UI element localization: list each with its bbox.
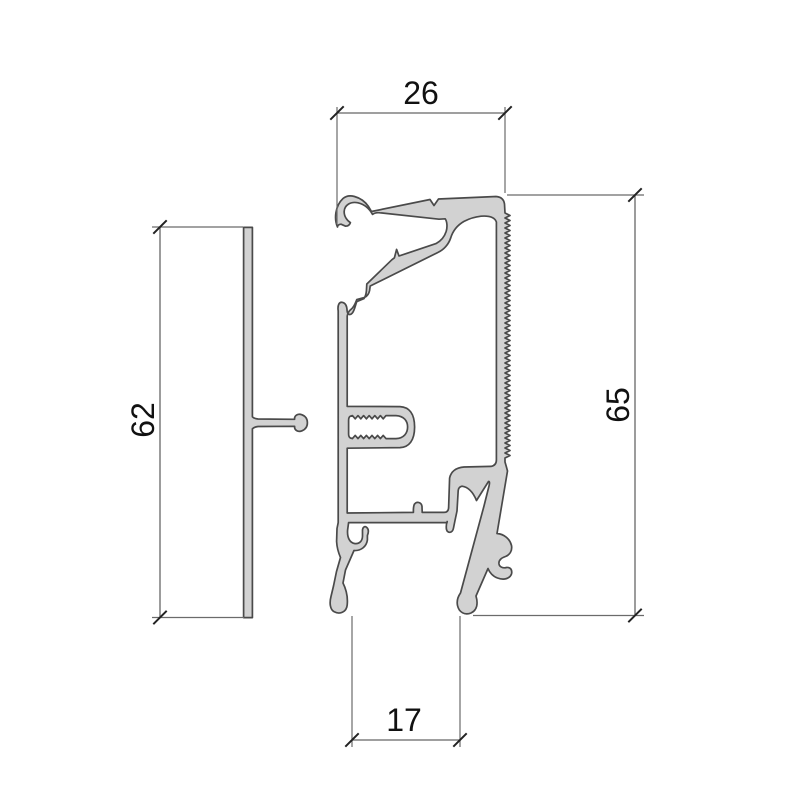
dimension-bottom-gap: 17 (345, 616, 466, 747)
dim-label-bottom-gap: 17 (386, 702, 422, 738)
technical-drawing-canvas: 26 65 62 17 (0, 0, 800, 800)
extrusion-profile-shape (330, 196, 512, 614)
dimension-left-height: 62 (125, 220, 244, 624)
cover-strip-shape (244, 227, 308, 617)
dim-label-right-height: 65 (600, 387, 636, 423)
dim-label-left-height: 62 (125, 402, 161, 438)
drawing-sheet: 26 65 62 17 (0, 0, 800, 800)
dim-label-top-width: 26 (403, 75, 439, 111)
